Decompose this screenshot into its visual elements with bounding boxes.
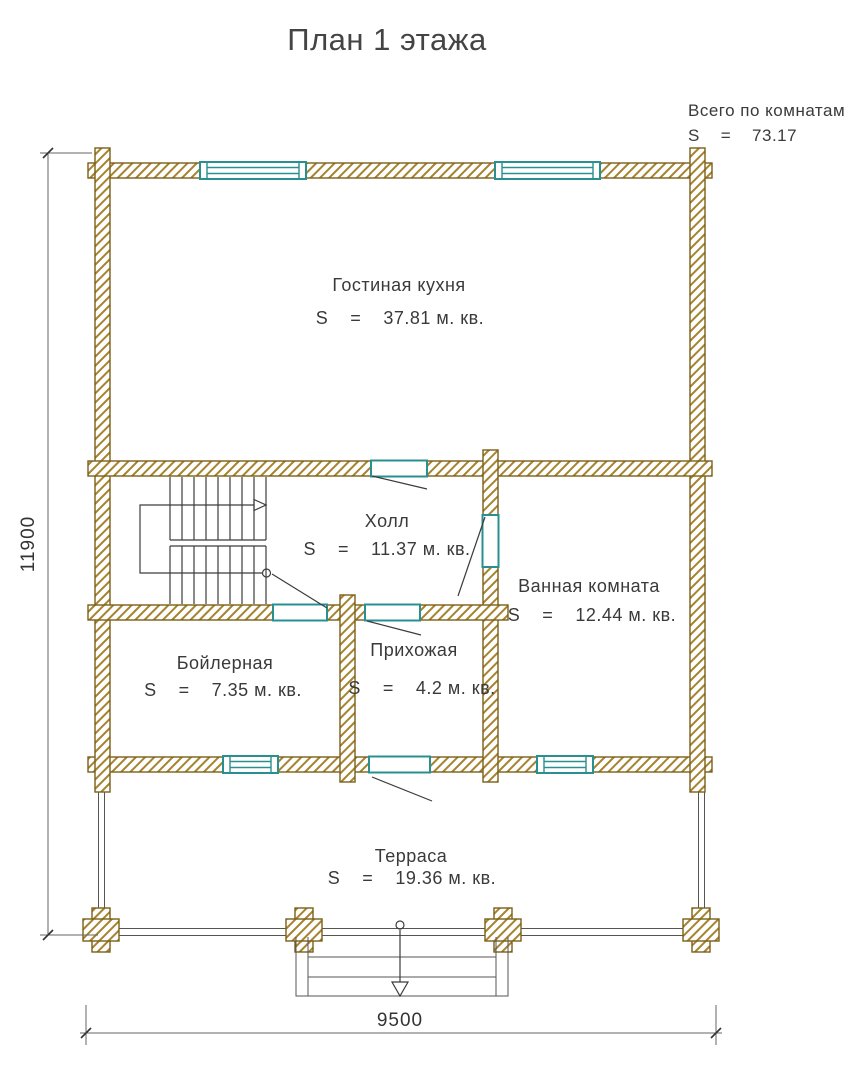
door-entry-to-terrace [369, 757, 432, 802]
room-label-terrace: Терраса [375, 846, 448, 866]
steps-down-arrow-icon [392, 982, 408, 996]
room-area-hall: S = 11.37 м. кв. [303, 539, 470, 559]
room-area-entry-hall: S = 4.2 м. кв. [348, 678, 495, 698]
wall-exterior-top [88, 163, 712, 178]
room-area-terrace: S = 19.36 м. кв. [328, 868, 496, 888]
room-area-boiler-room: S = 7.35 м. кв. [144, 680, 302, 700]
window-bathroom [537, 756, 593, 773]
stair-direction-path [140, 505, 262, 573]
door-hall-to-entry [365, 605, 421, 636]
steps-start-circle [396, 921, 404, 929]
room-label-hall: Холл [365, 511, 409, 531]
staircase [140, 477, 271, 604]
door-hall-to-boiler [272, 574, 327, 621]
room-area-living-kitchen: S = 37.81 м. кв. [316, 308, 484, 328]
summary-label: Всего по комнатам [688, 101, 845, 120]
room-label-living-kitchen: Гостиная кухня [332, 275, 465, 295]
terrace-column-2 [286, 908, 322, 952]
room-label-bathroom: Ванная комната [518, 576, 660, 596]
terrace-column-4 [683, 908, 719, 952]
floor-plan-page: План 1 этажа Всего по комнатам S = 73.17 [0, 0, 864, 1070]
page-title: План 1 этажа [287, 22, 487, 57]
stair-up-arrow-icon [254, 500, 266, 511]
window-top-left [200, 162, 306, 179]
window-top-right [495, 162, 600, 179]
dimension-left: 11900 [18, 148, 98, 940]
dimension-left-label: 11900 [18, 516, 39, 572]
door-living-to-hall [371, 461, 427, 490]
summary-area: S = 73.17 [688, 126, 797, 145]
room-label-boiler-room: Бойлерная [177, 653, 274, 673]
dimension-bottom-label: 9500 [377, 1010, 423, 1031]
dimension-bottom: 9500 [80, 1005, 722, 1045]
window-boiler-room [223, 756, 278, 773]
entrance-steps [296, 921, 508, 996]
terrace-column-1 [83, 908, 119, 952]
room-area-bathroom: S = 12.44 м. кв. [508, 605, 676, 625]
room-label-entry-hall: Прихожая [370, 640, 457, 660]
floor-plan-drawing: План 1 этажа Всего по комнатам S = 73.17 [0, 0, 864, 1070]
terrace-column-3 [485, 908, 521, 952]
